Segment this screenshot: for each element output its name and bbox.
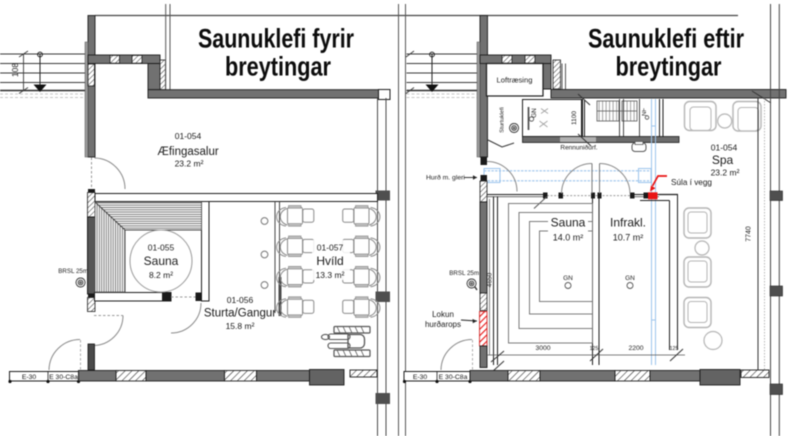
svg-text:GN: GN [563, 275, 573, 282]
svg-text:Sturtuklefi: Sturtuklefi [500, 107, 506, 133]
svg-text:Hurð m. gleri: Hurð m. gleri [426, 174, 465, 182]
svg-text:7740: 7740 [745, 226, 752, 242]
svg-text:01-055: 01-055 [148, 243, 175, 253]
svg-text:01-057: 01-057 [317, 243, 344, 253]
svg-text:E 30-C8a: E 30-C8a [439, 374, 468, 381]
svg-text:breytingar: breytingar [225, 52, 331, 82]
svg-text:Lokun: Lokun [432, 310, 454, 319]
svg-text:2200: 2200 [628, 345, 643, 352]
svg-text:GN: GN [531, 108, 538, 118]
svg-text:01-056: 01-056 [227, 295, 254, 305]
svg-text:breytingar: breytingar [616, 52, 722, 82]
svg-text:23.2 m²: 23.2 m² [175, 159, 204, 169]
svg-text:E-30: E-30 [22, 374, 37, 381]
svg-text:Saunuklefi fyrir: Saunuklefi fyrir [198, 24, 354, 54]
svg-text:Sauna: Sauna [551, 216, 586, 230]
svg-text:NF: NF [642, 108, 648, 116]
svg-text:23.2 m²: 23.2 m² [711, 168, 740, 178]
svg-text:Saunuklefi eftir: Saunuklefi eftir [588, 24, 744, 54]
svg-text:E 30-C8a: E 30-C8a [49, 374, 78, 381]
svg-text:Hvíld: Hvíld [316, 254, 343, 268]
svg-text:01-054: 01-054 [711, 143, 738, 153]
svg-text:125: 125 [670, 346, 679, 352]
svg-text:3000: 3000 [535, 345, 550, 352]
svg-text:Sturta/Gangur: Sturta/Gangur [204, 308, 276, 320]
svg-text:Spa: Spa [712, 153, 734, 167]
svg-text:GN: GN [625, 275, 635, 282]
svg-text:hurðarops: hurðarops [425, 320, 461, 329]
svg-text:13.3 m²: 13.3 m² [316, 270, 345, 280]
svg-text:8.2 m²: 8.2 m² [149, 270, 173, 280]
svg-text:Sauna: Sauna [144, 254, 179, 268]
svg-text:01-054: 01-054 [175, 131, 202, 141]
svg-text:Æfingasalur: Æfingasalur [157, 146, 219, 158]
svg-text:10.7 m²: 10.7 m² [613, 233, 644, 243]
svg-text:Súla í vegg: Súla í vegg [671, 178, 712, 187]
svg-text:14.0 m²: 14.0 m² [553, 233, 584, 243]
svg-text:BRSL 25m: BRSL 25m [449, 270, 479, 277]
svg-text:1100: 1100 [571, 111, 578, 125]
svg-text:E-30: E-30 [413, 374, 428, 381]
svg-text:15.8 m²: 15.8 m² [226, 321, 255, 331]
svg-text:Infrakl.: Infrakl. [610, 216, 646, 230]
svg-text:Loftræsing: Loftræsing [497, 76, 533, 85]
svg-text:125: 125 [590, 346, 599, 352]
svg-text:4650: 4650 [487, 272, 494, 287]
svg-text:BRSL 25m: BRSL 25m [58, 268, 88, 275]
svg-text:108: 108 [10, 63, 20, 77]
svg-text:Rennuniðurf.: Rennuniðurf. [560, 144, 597, 152]
